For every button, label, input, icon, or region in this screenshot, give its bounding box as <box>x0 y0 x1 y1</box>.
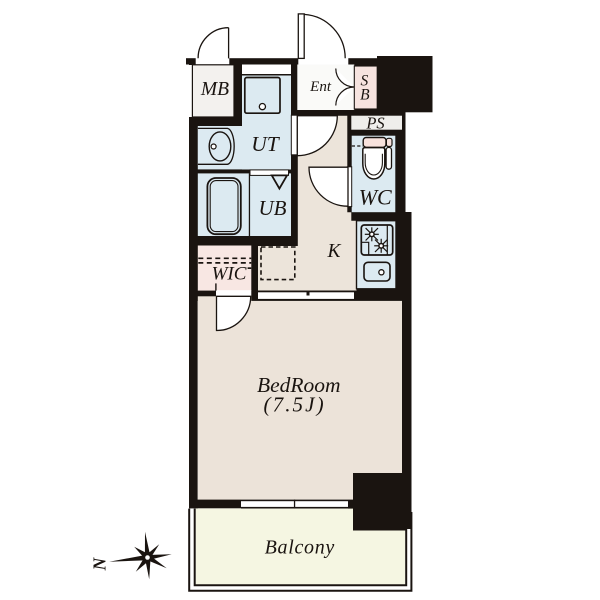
svg-text:B: B <box>360 87 370 104</box>
svg-text:K: K <box>326 241 341 262</box>
svg-text:(7.5J): (7.5J) <box>264 393 326 417</box>
svg-text:N: N <box>89 556 109 571</box>
svg-text:Balcony: Balcony <box>265 537 335 559</box>
svg-text:WC: WC <box>359 185 392 210</box>
svg-text:UB: UB <box>259 196 287 220</box>
svg-text:MB: MB <box>200 79 229 100</box>
svg-text:PS: PS <box>365 113 384 132</box>
svg-text:UT: UT <box>251 132 281 156</box>
svg-text:WIC: WIC <box>212 264 247 285</box>
svg-text:Ent: Ent <box>309 79 332 95</box>
